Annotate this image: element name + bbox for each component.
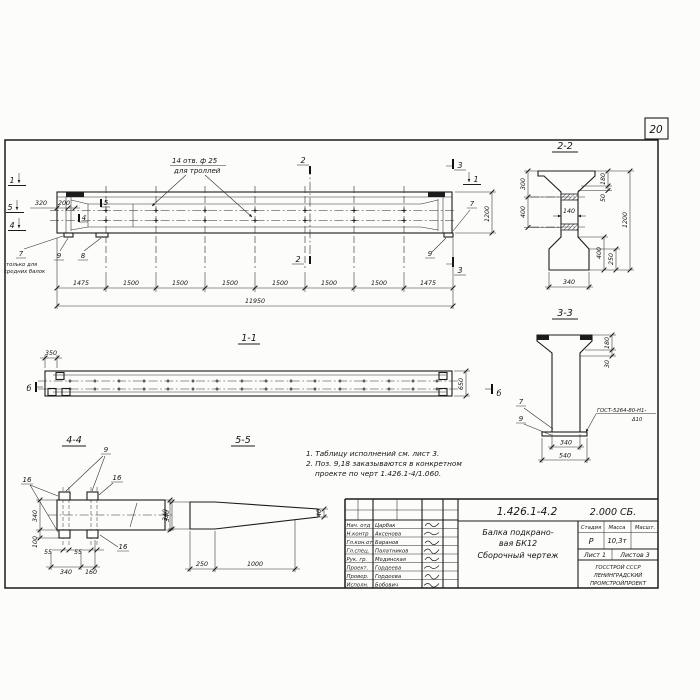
dim-100-detail-left: 100 — [32, 536, 39, 548]
dim-span: 1500 — [123, 280, 139, 287]
cut-1-label-right: 1 — [473, 175, 478, 184]
view-marker-b-left: б — [27, 384, 32, 393]
dim-250-taper: 250 — [196, 561, 208, 568]
sheet-number: 20 — [649, 124, 663, 136]
view-marker-b-right: б — [497, 389, 502, 398]
doc-code: 2.000 СБ. — [590, 507, 636, 518]
signature-mark — [424, 532, 439, 535]
role-label: Рук. гр. — [347, 557, 368, 563]
pos-7-note-line2: средних балок — [4, 269, 46, 275]
person-name: Аксенова — [374, 532, 401, 538]
inner-cut-4: 4 — [82, 214, 86, 222]
dim-1000-taper: 1000 — [247, 561, 263, 568]
pos-9-section: 9 — [519, 415, 524, 423]
drawing-title-line3: Сборочный чертеж — [478, 551, 560, 560]
section-3-3-title: 3-3 — [557, 308, 573, 319]
sole-plate-9 — [64, 233, 73, 237]
dim-160-detail-bottom: 160 — [85, 569, 97, 576]
drawing-title-line1: Балка подкрано- — [482, 528, 553, 537]
mass-value: 10,3т — [607, 537, 627, 545]
dim-span: 1475 — [420, 280, 436, 287]
main-elevation-view: 2 2 3 3 1 1 5 4 320 200 5 4 14 отв. ф 25… — [4, 156, 496, 309]
mass-header: Масса — [609, 525, 626, 531]
signature-mark — [424, 566, 439, 569]
dim-540-section3: 540 — [559, 453, 571, 460]
sheets-total-value: Листов 3 — [619, 552, 650, 559]
pos-16-left: 16 — [23, 476, 32, 484]
detail-5-5-view: 5-5 340 250 1000 40 — [164, 435, 328, 572]
section-2-2-title: 2-2 — [557, 141, 573, 152]
dim-140-web: 140 — [563, 208, 575, 215]
signature-mark — [425, 575, 439, 580]
note-line-1: 1. Таблицу исполнений см. лист 3. — [306, 449, 439, 458]
note-line-2: 2. Поз. 9,18 заказываются в конкретном — [306, 459, 462, 468]
pos-7-note-line1: только для — [6, 262, 38, 268]
role-label: Исполн. — [347, 583, 369, 589]
cut-4-label-left: 4 — [9, 221, 14, 230]
detail-4-4-title: 4-4 — [66, 435, 82, 446]
scale-header: Масшт. — [635, 525, 655, 531]
pos-16-bottom: 16 — [119, 543, 128, 551]
dim-span: 1500 — [272, 280, 288, 287]
dim-50: 50 — [600, 194, 607, 202]
organization-line3: ПРОМСТРОЙПРОЕКТ — [590, 580, 647, 587]
role-label: Провер. — [347, 574, 369, 580]
person-name: Царбак — [375, 523, 396, 529]
weld-note-line2: Δ10 — [631, 417, 643, 423]
pos-16-right: 16 — [113, 474, 122, 482]
dim-650: 650 — [458, 378, 465, 390]
holes-note-line2: для троллей — [173, 167, 221, 175]
person-name: Гордеева — [375, 566, 401, 572]
drawing-title-line2: вая БК12 — [499, 539, 537, 548]
cut-1-label-left: 1 — [9, 176, 14, 185]
signature-mark — [424, 584, 439, 588]
stage-header: Стадия — [581, 525, 602, 531]
section-1-1-title: 1-1 — [241, 333, 257, 344]
pos-9-right-label: 9 — [428, 250, 433, 258]
cut-3-label-top: 3 — [457, 161, 462, 170]
person-name: Палатников — [375, 549, 408, 555]
cut-2-label-top: 2 — [300, 156, 305, 165]
taper-plate-outline — [190, 502, 318, 529]
pos-7-right-label: 7 — [470, 200, 475, 208]
signature-mark — [425, 523, 439, 527]
holes-note-line1: 14 отв. ф 25 — [172, 157, 218, 165]
dim-340-taper-left: 340 — [164, 510, 171, 522]
sole-plate-right — [444, 233, 453, 237]
section-3-3-shape — [537, 335, 592, 432]
dim-340-bottom: 340 — [563, 279, 575, 286]
dim-1200-section: 1200 — [622, 212, 629, 228]
embedded-plate-left — [66, 192, 84, 197]
pos-9-detail: 9 — [104, 446, 109, 454]
dim-340-section3: 340 — [560, 440, 572, 447]
stage-value: Р — [589, 537, 594, 546]
inner-cut-5: 5 — [104, 199, 109, 207]
person-name: Мединская — [375, 557, 407, 563]
section-3-3-view: 3-3 7 9 ГОСТ-5264-80-Н1- Δ10 180 30 340 … — [516, 308, 656, 463]
dim-340-detail-left: 340 — [32, 510, 39, 522]
dim-1200-elevation: 1200 — [484, 206, 491, 222]
detail-5-5-title: 5-5 — [235, 435, 251, 446]
role-label: Проект. — [347, 566, 369, 572]
section-2-2-view: 2-2 300 400 140 180 50 400 250 1200 340 — [520, 141, 634, 290]
person-name: Бобович — [375, 583, 398, 589]
dim-300: 300 — [520, 178, 527, 190]
section-1-1-view: 1-1 350 650 б б — [27, 333, 502, 398]
dim-40-taper-right: 40 — [316, 509, 323, 517]
sheet-value: Лист 1 — [583, 552, 606, 559]
person-name: Гордеева — [375, 574, 401, 580]
dim-340-detail-bottom: 340 — [60, 569, 72, 576]
doc-number: 1.426.1-4.2 — [497, 506, 558, 518]
dim-span: 1500 — [172, 280, 188, 287]
note-line-3: проекте по черт 1.426.1-4/1.060. — [315, 469, 441, 478]
dim-250: 250 — [608, 253, 615, 265]
pos-7-label: 7 — [19, 250, 24, 258]
dim-320: 320 — [35, 200, 47, 207]
dim-30-section3: 30 — [604, 360, 611, 368]
pos-9-label: 9 — [57, 252, 62, 260]
cut-3-label-bottom: 3 — [457, 266, 462, 275]
dim-span: 1475 — [73, 280, 89, 287]
dim-200: 200 — [58, 200, 70, 207]
pos-8-label: 8 — [81, 252, 86, 260]
organization-line2: ЛЕНИНГРАДСКИЙ — [593, 572, 643, 579]
role-label: Гл.спец. — [347, 549, 370, 555]
pos-7-section: 7 — [519, 398, 524, 406]
dim-350: 350 — [45, 350, 57, 357]
notes: 1. Таблицу исполнений см. лист 3. 2. Поз… — [306, 449, 462, 478]
role-label: Гл.кон.от — [347, 540, 374, 546]
organization-line1: ГОССТРОЙ СССР — [595, 564, 641, 571]
dim-span: 1500 — [321, 280, 337, 287]
embedded-plate-right — [428, 192, 445, 197]
dim-total-length: 11950 — [245, 298, 265, 305]
sheet-frame: 20 — [5, 118, 668, 588]
person-name: Баранов — [375, 540, 398, 546]
detail-4-4-view: 4-4 9 16 16 16 340 100 55 55 340 160 340 — [21, 435, 174, 576]
dim-span: 1500 — [371, 280, 387, 287]
dim-180-section3: 180 — [604, 337, 611, 349]
drawing-sheet: 20 2 2 3 3 1 1 5 4 320 200 5 4 14 отв. ф… — [0, 0, 700, 700]
title-block: 1.426.1-4.2 2.000 СБ. Балка подкрано- ва… — [345, 499, 658, 589]
dim-span: 1500 — [222, 280, 238, 287]
signature-mark — [425, 541, 439, 545]
signature-mark — [425, 557, 439, 561]
dim-180: 180 — [600, 173, 607, 185]
cut-5-label-left: 5 — [7, 203, 12, 212]
cut-2-label-bottom: 2 — [295, 255, 300, 264]
dim-400-left: 400 — [520, 206, 527, 218]
sole-plate-8 — [96, 233, 108, 237]
weld-note-line1: ГОСТ-5264-80-Н1- — [597, 408, 646, 414]
signature-mark — [424, 549, 439, 554]
role-label: Нач. отд — [347, 523, 371, 529]
role-label: Н.контр — [347, 532, 370, 538]
drawing-canvas: 20 2 2 3 3 1 1 5 4 320 200 5 4 14 отв. ф… — [0, 0, 700, 700]
